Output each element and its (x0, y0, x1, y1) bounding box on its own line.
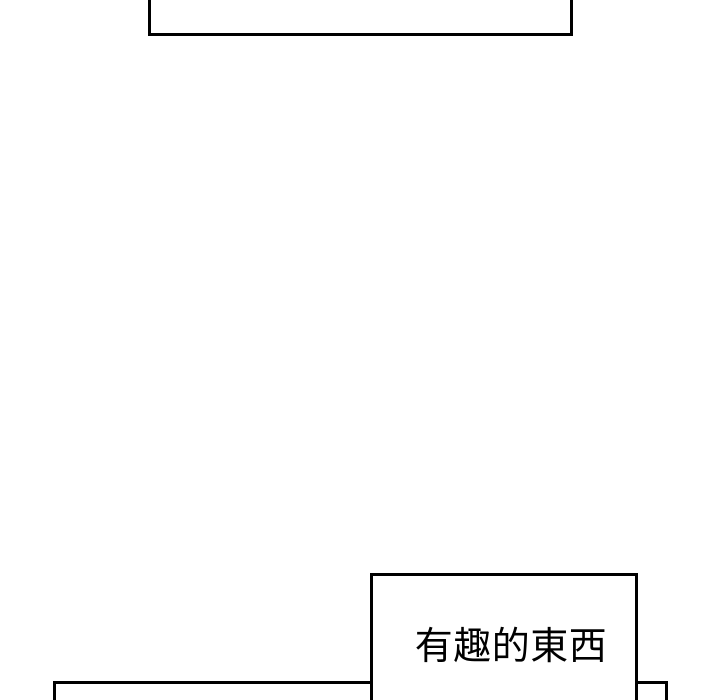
comic-panel-top (148, 0, 573, 36)
comic-page: 有趣的東西 (0, 0, 720, 700)
caption-box: 有趣的東西 (370, 573, 638, 700)
caption-text: 有趣的東西 (373, 627, 635, 665)
